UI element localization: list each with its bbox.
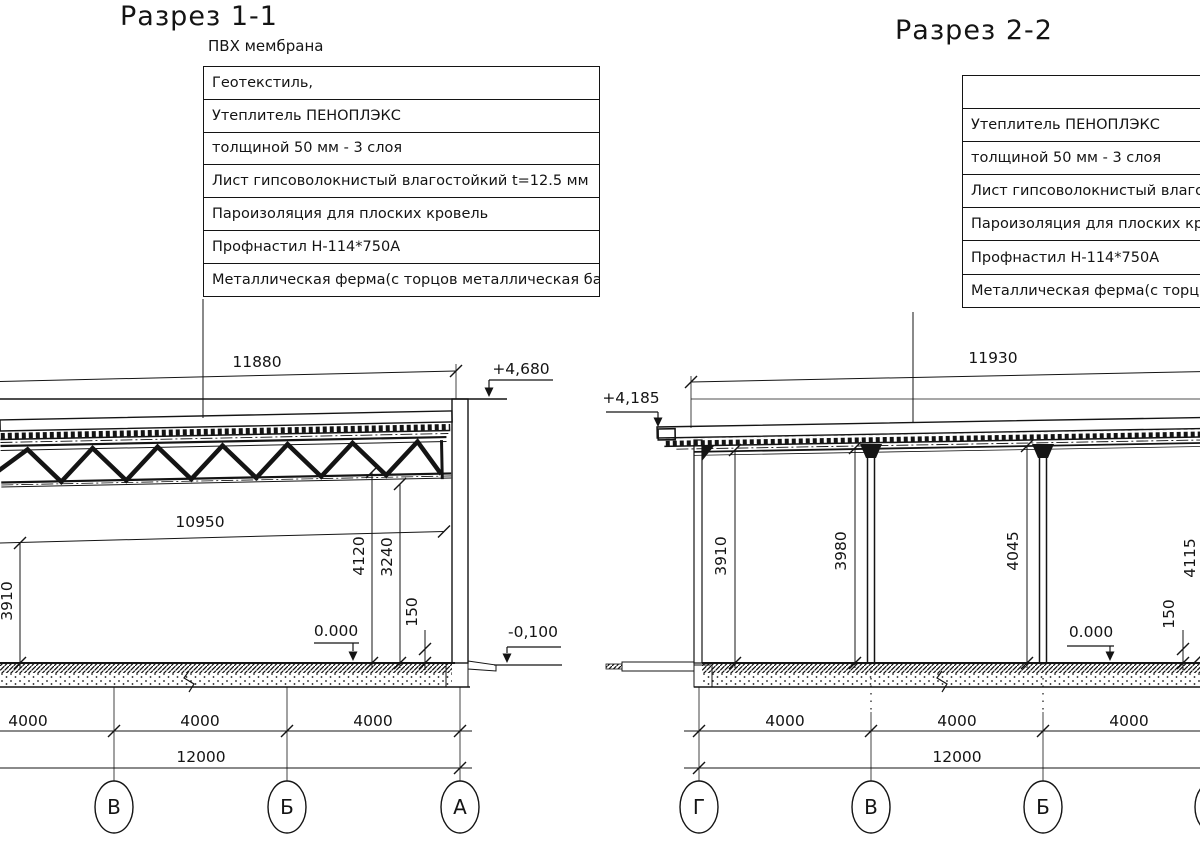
callout-row: Металлическая ферма(с торцов металлическ…	[204, 264, 599, 297]
svg-text:150: 150	[1160, 599, 1178, 629]
svg-text:4000: 4000	[180, 712, 219, 730]
callout-row: Пароизоляция для плоских кровель	[963, 208, 1200, 241]
section2-callout-table: Утеплитель ПЕНОПЛЭКС толщиной 50 мм - 3 …	[962, 75, 1200, 308]
section2-axes: 4000 4000 4000 12000 Г В Б	[680, 687, 1200, 833]
level-top-value: +4,680	[492, 360, 549, 378]
level-mark-top: +4,680	[485, 360, 554, 397]
svg-text:А: А	[453, 795, 467, 819]
section2-wall	[694, 440, 702, 663]
svg-text:4115: 4115	[1181, 538, 1199, 577]
callout-row: толщиной 50 мм - 3 слоя	[963, 142, 1200, 175]
svg-text:4000: 4000	[765, 712, 804, 730]
svg-text:0.000: 0.000	[1069, 623, 1113, 641]
svg-text:В: В	[864, 795, 878, 819]
roof-profiled-sheet	[0, 423, 450, 439]
dim-line-11930	[691, 372, 1200, 383]
svg-text:12000: 12000	[176, 748, 225, 766]
svg-text:4000: 4000	[937, 712, 976, 730]
svg-text:3910: 3910	[0, 581, 16, 620]
svg-text:150: 150	[403, 597, 421, 627]
section1-roof-truss	[0, 411, 453, 488]
section2-title: Разрез 2-2	[895, 15, 1053, 46]
section2-apron	[622, 662, 694, 671]
svg-text:4045: 4045	[1004, 531, 1022, 570]
floor-screed-hatch	[702, 664, 1200, 673]
level-mark-ground: -0,100	[503, 623, 562, 663]
section1-apron	[468, 661, 496, 671]
section1-callout-table: Геотекстиль, Утеплитель ПЕНОПЛЭКС толщин…	[203, 66, 600, 297]
svg-text:В: В	[107, 795, 121, 819]
callout-row: толщиной 50 мм - 3 слоя	[204, 133, 599, 166]
dim-height-4: 4115	[1181, 444, 1200, 668]
svg-text:3910: 3910	[712, 536, 730, 575]
callout-row: Утеплитель ПЕНОПЛЭКС	[963, 109, 1200, 142]
floor-bedding-dots	[0, 673, 452, 686]
svg-text:Б: Б	[1036, 795, 1050, 819]
svg-text:0.000: 0.000	[314, 622, 358, 640]
svg-text:Г: Г	[693, 795, 705, 819]
section1-end-wall	[452, 399, 468, 663]
dim-slab-edge: 150	[403, 597, 431, 670]
column-capital	[1032, 444, 1054, 458]
callout-row: Лист гипсоволокнистый влагостойкий t=12.…	[963, 175, 1200, 208]
svg-text:Б: Б	[280, 795, 294, 819]
svg-text:+4,185: +4,185	[602, 389, 659, 407]
dim-slab-edge: 150	[1160, 599, 1189, 670]
svg-text:4000: 4000	[1109, 712, 1148, 730]
dim-height-3: 4045	[1004, 440, 1033, 669]
svg-text:4000: 4000	[353, 712, 392, 730]
floor-screed-hatch	[0, 664, 452, 673]
callout-row: Геотекстиль,	[204, 67, 599, 100]
section1-title: Разрез 1-1	[120, 1, 278, 32]
callout-row: Металлическая ферма(с торцов металлическ…	[963, 275, 1200, 308]
callout-row: Профнастил Н-114*750А	[204, 231, 599, 264]
callout-row: Профнастил Н-114*750А	[963, 241, 1200, 274]
svg-text:3980: 3980	[832, 531, 850, 570]
wall-window-gap	[453, 537, 467, 603]
roof-profiled-sheet	[664, 429, 1200, 445]
level-mark-zero: 0.000	[314, 622, 359, 661]
svg-text:4000: 4000	[8, 712, 47, 730]
section2-drawing: 11930 +4,185	[602, 312, 1200, 833]
dim-height-1: 3910	[712, 444, 741, 669]
floor-bedding-dots	[702, 673, 1200, 686]
svg-text:4120: 4120	[350, 536, 368, 575]
axis-bubble-clipped	[1195, 781, 1200, 833]
callout-row: Лист гипсоволокнистый влагостойкий t=12.…	[204, 165, 599, 198]
dim-line-11880	[0, 371, 456, 382]
section1-axes: 4000 4000 4000 12000 В Б А	[0, 687, 479, 833]
pvc-membrane-label: ПВХ мембрана	[208, 37, 323, 55]
dim-height-2: 3980	[832, 442, 861, 669]
svg-text:-0,100: -0,100	[508, 623, 558, 641]
level-mark-zero: 0.000	[1067, 623, 1115, 661]
dim-height-left: 3910	[0, 537, 26, 669]
callout-row	[963, 76, 1200, 109]
column-capital	[860, 444, 882, 458]
dim-height-clear: 3240	[378, 478, 406, 669]
elevation-arrow	[485, 388, 494, 398]
callout-row: Утеплитель ПЕНОПЛЭКС	[204, 100, 599, 133]
apron-edge	[606, 664, 622, 669]
svg-text:12000: 12000	[932, 748, 981, 766]
callout-row: Пароизоляция для плоских кровель	[204, 198, 599, 231]
dim-span-top: 11880	[232, 353, 281, 371]
dim-span-top: 11930	[968, 349, 1017, 367]
section2-roof	[657, 417, 1200, 456]
dim-span-clear: 10950	[175, 513, 224, 531]
level-mark-top: +4,185	[602, 389, 662, 427]
section1-drawing: 11880 +4,680 10950 3910 4120 3240	[0, 299, 562, 833]
svg-text:3240: 3240	[378, 537, 396, 576]
